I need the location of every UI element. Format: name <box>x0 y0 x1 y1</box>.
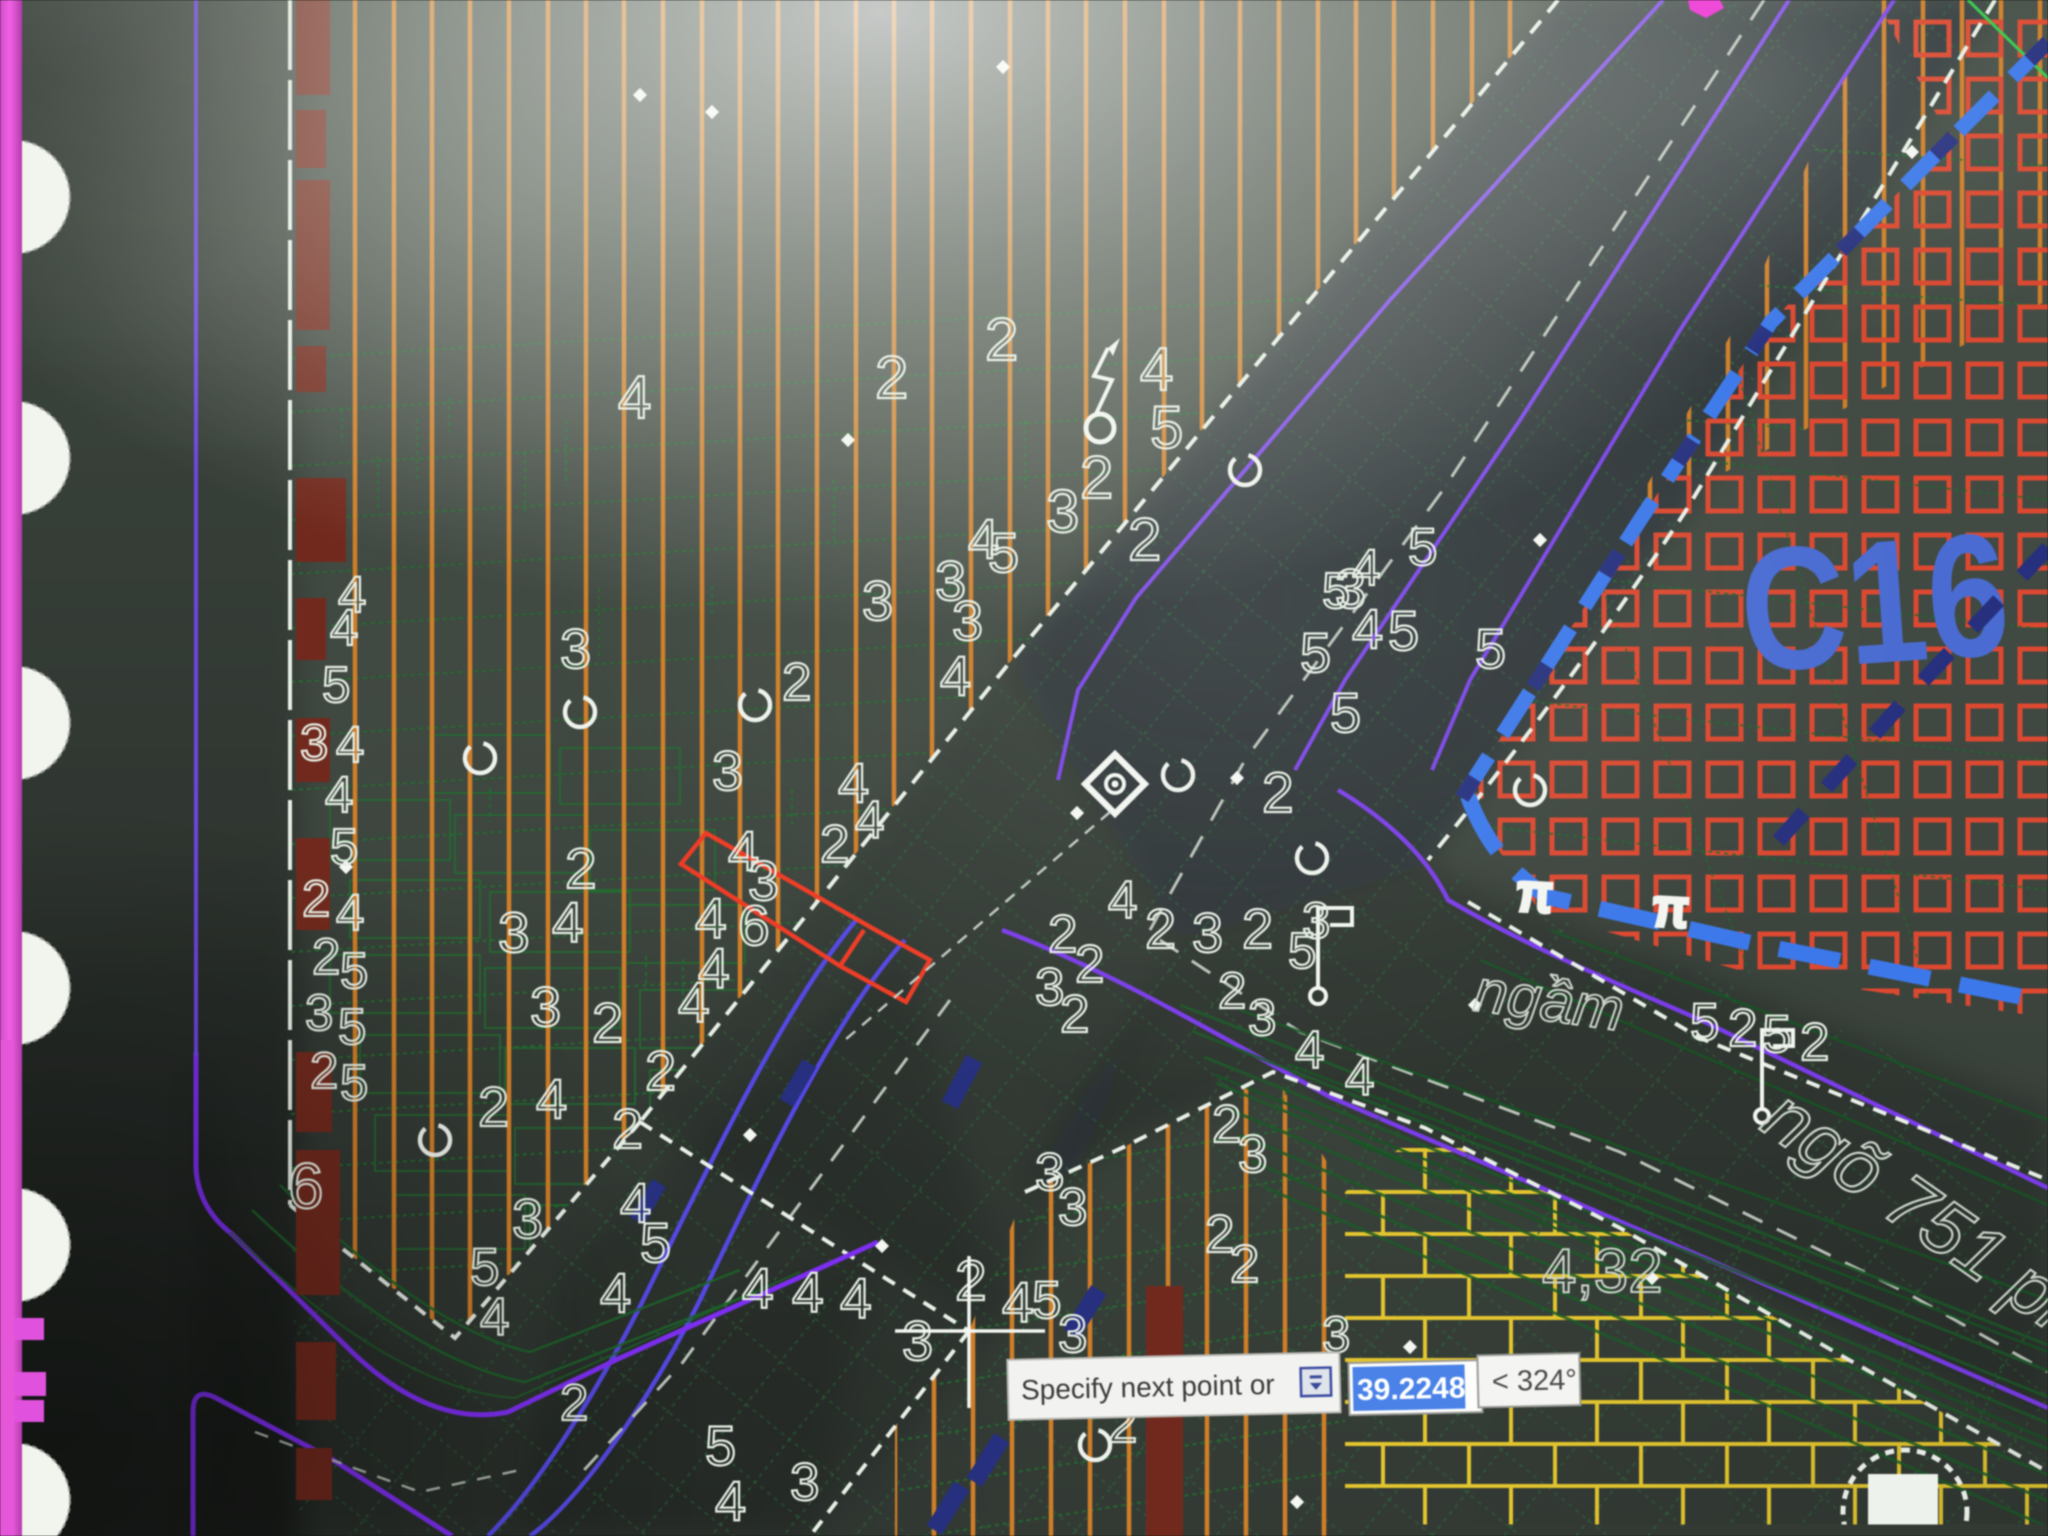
svg-text:3: 3 <box>1238 1125 1267 1184</box>
svg-text:4: 4 <box>792 1261 824 1325</box>
svg-text:4: 4 <box>336 716 364 773</box>
svg-text:3: 3 <box>902 1309 933 1372</box>
svg-text:3: 3 <box>498 901 530 965</box>
svg-text:2: 2 <box>1800 1013 1829 1072</box>
svg-text:2: 2 <box>1728 999 1757 1058</box>
svg-text:5: 5 <box>322 656 350 713</box>
svg-text:2: 2 <box>955 1249 987 1313</box>
svg-text:5: 5 <box>705 1414 736 1477</box>
svg-text:2: 2 <box>1230 1235 1259 1294</box>
svg-text:5: 5 <box>330 818 358 875</box>
svg-text:5: 5 <box>1762 1005 1791 1064</box>
svg-text:< 324°: < 324° <box>1492 1364 1578 1398</box>
svg-text:4: 4 <box>552 891 584 955</box>
svg-text:Specify next point or: Specify next point or <box>1021 1369 1275 1406</box>
svg-text:5: 5 <box>1690 993 1719 1052</box>
svg-text:3: 3 <box>300 714 328 771</box>
svg-text:39.2248: 39.2248 <box>1357 1372 1466 1407</box>
svg-text:4: 4 <box>715 1469 746 1532</box>
svg-text:4: 4 <box>325 766 353 823</box>
svg-text:3: 3 <box>790 1453 819 1512</box>
svg-text:4: 4 <box>742 1257 774 1321</box>
svg-text:2: 2 <box>592 991 623 1054</box>
svg-text:4: 4 <box>840 1267 872 1331</box>
svg-text:4: 4 <box>1002 1271 1034 1335</box>
svg-text:3: 3 <box>1058 1305 1087 1364</box>
svg-text:4: 4 <box>678 971 710 1035</box>
svg-text:4: 4 <box>330 599 358 656</box>
svg-text:3: 3 <box>1058 1178 1087 1237</box>
svg-text:2: 2 <box>645 1039 676 1102</box>
